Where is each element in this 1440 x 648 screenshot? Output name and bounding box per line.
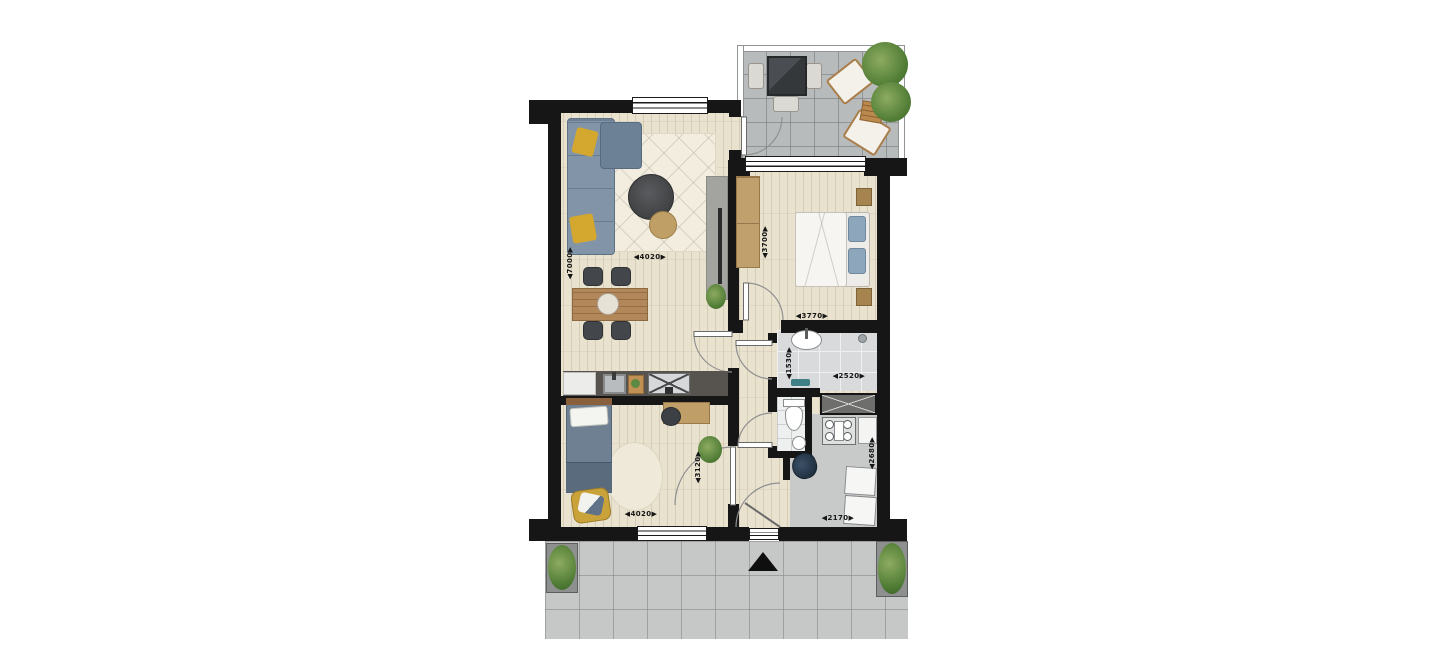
utility-unit-center [834, 421, 844, 441]
utility-unit-burner [843, 420, 852, 429]
walkway-plant-left [548, 545, 576, 590]
utility-unit-burner [825, 420, 834, 429]
bathroom-door-arc [736, 343, 772, 379]
balcony-table [767, 56, 807, 96]
dining-chair [611, 267, 631, 286]
plant-living [706, 284, 726, 309]
nightstand [856, 188, 872, 206]
double-bed-duvet [795, 212, 847, 287]
bedroom2-door-leaf [731, 447, 736, 505]
dining-table-bowl [597, 293, 619, 315]
balcony-door-leaf [742, 117, 747, 155]
dim-living-width: ◀4020▶ [627, 252, 673, 262]
entrance-arrow [748, 552, 778, 571]
dining-chair [611, 321, 631, 340]
dim-bathroom-height: ◀1530▶ [784, 340, 794, 386]
toilet-hand-basin [792, 436, 806, 450]
toilet-door-leaf [738, 443, 772, 448]
living-hall-door-arc [694, 334, 732, 372]
bath-sink-faucet [805, 328, 808, 339]
living-hall-door-leaf [694, 332, 732, 337]
dim-bedroom2-width: ◀4020▶ [618, 509, 664, 519]
kitchen-cabinet-white [563, 372, 596, 395]
kitchen-faucet [612, 372, 616, 380]
desk-chair [661, 407, 681, 426]
door-swing-arcs [0, 0, 1440, 648]
dining-chair [583, 321, 603, 340]
cutting-board-greens [631, 379, 640, 388]
utility-unit-burner [843, 432, 852, 441]
single-bed-headboard [566, 398, 612, 405]
bedroom1-door-arc [746, 283, 783, 320]
balcony-plant-large [862, 42, 908, 87]
dim-bathroom-width: ◀2520▶ [826, 371, 872, 381]
walkway-plant-right [878, 543, 906, 594]
balcony-chair [806, 63, 822, 89]
round-rug [606, 442, 663, 511]
sofa-chaise [600, 122, 642, 169]
dim-storage-height: ◀2680▶ [867, 430, 877, 476]
dim-bedroom2-height: ◀3120▶ [693, 444, 703, 490]
balcony-chair [748, 63, 764, 89]
balcony-chair [773, 96, 799, 112]
media-sideboard [706, 176, 728, 300]
bed-pillow [848, 216, 866, 242]
dim-storage-width: ◀2170▶ [815, 513, 861, 523]
toilet-door-arc [738, 413, 772, 445]
nightstand [856, 288, 872, 306]
hob-knob [665, 387, 673, 394]
balcony-plant-small [871, 82, 911, 122]
bathroom-door-leaf [736, 341, 772, 346]
front-door-arc [736, 483, 780, 527]
front-door-leaf [745, 503, 780, 527]
wardrobe [736, 176, 760, 268]
dim-bedroom1-height: ◀3700▶ [760, 219, 770, 265]
bedroom1-door-leaf [744, 283, 749, 320]
shower-head [858, 334, 867, 343]
dining-chair [583, 267, 603, 286]
single-bed-pillow [569, 406, 608, 428]
dim-bedroom1-width: ◀3770▶ [789, 311, 835, 321]
side-table [649, 211, 677, 239]
single-bed-blanket-fold [566, 462, 612, 492]
floor-plan-canvas: ◀7000▶ ◀4020▶ ◀3700▶ ◀3770▶ ◀1530▶ ◀2520… [0, 0, 1440, 648]
dim-living-height: ◀7000▶ [565, 240, 575, 286]
tv [718, 208, 722, 284]
utility-unit-burner [825, 432, 834, 441]
bed-pillow [848, 248, 866, 274]
balcony-door-arc [744, 117, 782, 155]
